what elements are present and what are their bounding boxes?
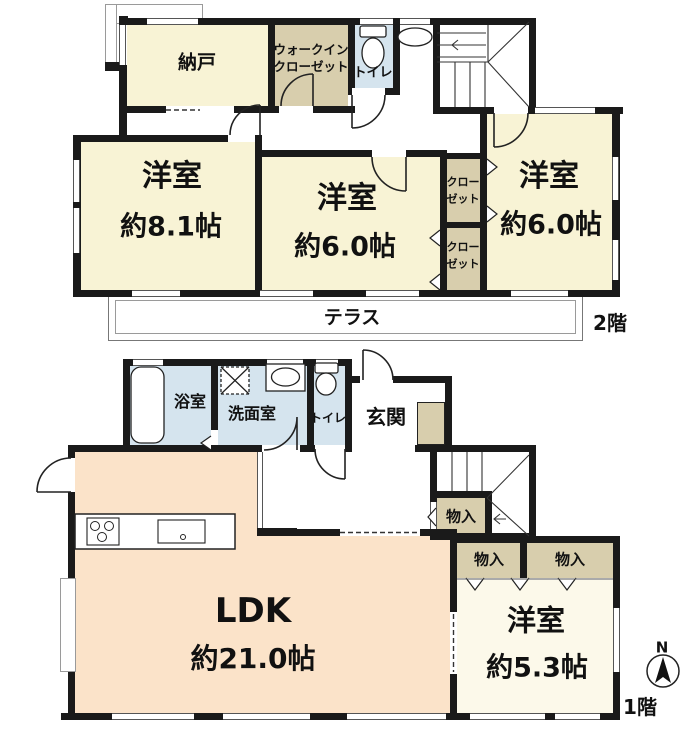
label-ldk-size: 約21.0帖 — [190, 645, 315, 673]
label-floor2: 2階 — [593, 313, 627, 333]
label-floor1: 1階 — [623, 697, 657, 717]
window — [267, 359, 303, 366]
partition — [257, 452, 263, 528]
wall — [445, 376, 452, 452]
wall — [119, 65, 127, 135]
wall — [529, 445, 536, 540]
wall — [198, 18, 360, 25]
wall — [262, 529, 340, 536]
wall — [440, 150, 447, 297]
label-toilet-2f: トイレ — [353, 67, 392, 80]
shoe-cabinet — [417, 402, 445, 445]
wall — [255, 135, 262, 297]
floor-plan: 納戸 ウォークイン クローゼット トイレ 洋室 約8.1帖 洋室 約6.0帖 洋… — [0, 0, 688, 735]
label-closet-lower: ゼット — [447, 259, 480, 270]
window — [133, 359, 163, 366]
window — [260, 290, 313, 297]
label-room60r-name: 洋室 — [519, 162, 579, 192]
label-room53-name: 洋室 — [507, 607, 565, 636]
wall — [345, 359, 352, 452]
window — [112, 713, 194, 720]
door-arc — [363, 350, 393, 380]
label-room53-size: 約5.3帖 — [486, 655, 588, 682]
wall — [393, 376, 452, 383]
door-opening — [279, 106, 313, 113]
label-closet-upper: クロー — [447, 177, 480, 188]
wall — [430, 18, 536, 25]
bay-window — [60, 578, 76, 672]
label-storage-1: 物入 — [446, 510, 476, 525]
window — [613, 608, 620, 672]
sliding-opening — [166, 106, 234, 113]
wall — [123, 359, 130, 452]
label-closet-upper: ゼット — [447, 194, 480, 205]
door-arc — [352, 95, 385, 128]
wall — [68, 445, 262, 452]
window — [73, 160, 80, 202]
label-terrace: テラス — [324, 309, 381, 328]
door-arc — [37, 458, 71, 492]
label-compass-north: N — [656, 641, 669, 656]
label-walkin-closet: ウォークイン — [273, 44, 348, 57]
window — [132, 290, 180, 297]
room-toilet-1f — [314, 366, 345, 445]
wall — [119, 106, 355, 113]
label-ldk-name: LDK — [215, 594, 291, 628]
label-storage-2: 物入 — [474, 553, 504, 568]
wall — [420, 529, 457, 536]
door-opening — [68, 458, 75, 492]
stairs-arrow — [452, 40, 480, 50]
window — [366, 290, 419, 297]
label-walkin-closet: クローゼット — [273, 61, 348, 74]
wall — [119, 18, 147, 25]
wall — [450, 536, 620, 543]
label-washroom: 洗面室 — [228, 406, 276, 422]
window — [612, 240, 619, 280]
closet-upper — [447, 159, 480, 222]
sliding-opening — [450, 612, 457, 674]
door-opening — [494, 107, 528, 114]
label-room81-name: 洋室 — [142, 162, 202, 192]
eaves-outline — [105, 4, 117, 68]
window — [223, 713, 310, 720]
window — [535, 107, 595, 114]
stairs-arrow — [494, 514, 506, 524]
room-yoshitsu-60-right — [487, 113, 612, 290]
wall — [430, 491, 492, 498]
window — [347, 713, 446, 720]
wall — [529, 18, 536, 113]
door-opening — [352, 88, 385, 95]
label-room60r-size: 約6.0帖 — [500, 212, 602, 239]
label-closet-lower: クロー — [447, 242, 480, 253]
label-nando: 納戸 — [178, 54, 216, 73]
wall — [480, 108, 487, 297]
stairs-2f — [437, 22, 529, 107]
wall — [393, 18, 400, 95]
label-toilet-1f: トイレ — [310, 412, 346, 424]
window — [511, 290, 568, 297]
window — [555, 713, 600, 720]
room-yoshitsu-53 — [457, 580, 613, 713]
wall — [255, 150, 447, 157]
window — [612, 157, 619, 200]
wall — [300, 445, 315, 452]
label-storage-3: 物入 — [555, 553, 585, 568]
wall — [345, 445, 352, 452]
label-room81-size: 約8.1帖 — [120, 214, 222, 241]
room-yoshitsu-60-middle — [262, 157, 440, 290]
window — [119, 25, 126, 65]
basin-icon — [398, 28, 432, 46]
wall — [211, 359, 218, 430]
label-room60m-size: 約6.0帖 — [294, 234, 396, 261]
door-opening — [372, 150, 406, 157]
compass-icon — [647, 655, 679, 687]
wall — [433, 18, 440, 113]
wall — [345, 376, 360, 383]
wall — [520, 543, 527, 578]
wall — [348, 18, 355, 95]
label-room60m-name: 洋室 — [317, 184, 377, 214]
label-genkan: 玄関 — [366, 407, 406, 427]
door-arc — [315, 449, 345, 479]
label-bath: 浴室 — [174, 394, 206, 410]
window — [470, 713, 545, 720]
window — [147, 18, 198, 25]
window — [73, 208, 80, 253]
wall — [307, 359, 314, 452]
window — [316, 359, 338, 366]
wall — [415, 445, 536, 452]
